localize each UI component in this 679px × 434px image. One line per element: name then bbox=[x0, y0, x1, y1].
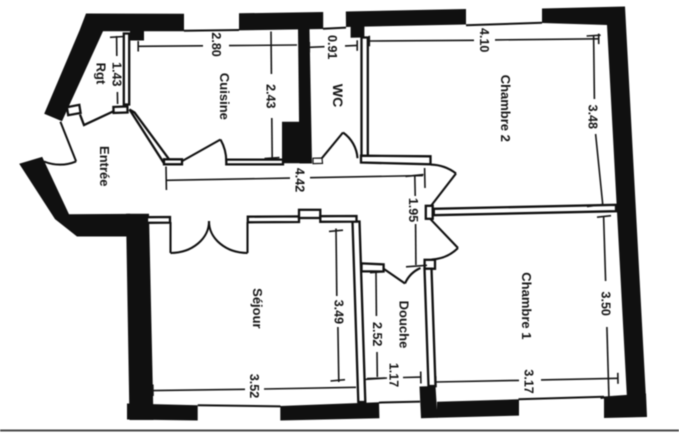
svg-text:Douche: Douche bbox=[396, 301, 411, 349]
svg-text:2.52: 2.52 bbox=[370, 322, 384, 346]
svg-text:Cuisine: Cuisine bbox=[217, 73, 232, 120]
svg-text:4.42: 4.42 bbox=[293, 168, 307, 192]
svg-text:0.91: 0.91 bbox=[325, 35, 339, 59]
svg-text:3.52: 3.52 bbox=[247, 374, 261, 398]
svg-text:1.17: 1.17 bbox=[387, 363, 401, 387]
svg-text:Chambre 1: Chambre 1 bbox=[519, 272, 534, 339]
svg-text:3.49: 3.49 bbox=[332, 300, 346, 324]
svg-text:3.50: 3.50 bbox=[598, 292, 612, 316]
svg-text:WC: WC bbox=[330, 84, 346, 107]
svg-text:3.17: 3.17 bbox=[522, 369, 536, 393]
svg-text:2.43: 2.43 bbox=[264, 84, 278, 108]
svg-text:Rgt: Rgt bbox=[93, 63, 108, 85]
svg-text:3.48: 3.48 bbox=[586, 105, 600, 129]
svg-text:1.95: 1.95 bbox=[406, 198, 420, 222]
svg-text:Entrée: Entrée bbox=[97, 146, 112, 186]
svg-text:1.43: 1.43 bbox=[110, 62, 124, 86]
svg-text:Séjour: Séjour bbox=[250, 288, 265, 328]
svg-text:4.10: 4.10 bbox=[477, 28, 491, 52]
svg-text:Chambre 2: Chambre 2 bbox=[498, 75, 513, 142]
svg-text:2.80: 2.80 bbox=[209, 32, 223, 56]
